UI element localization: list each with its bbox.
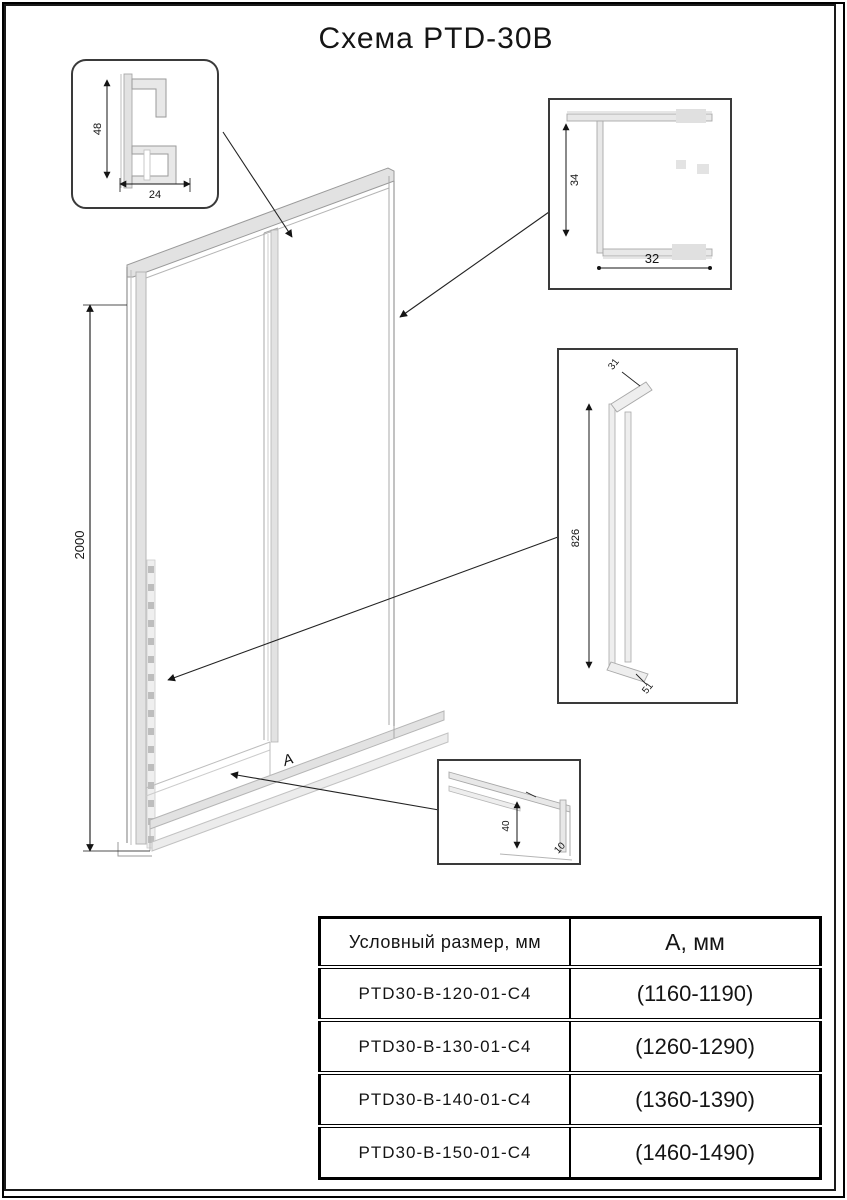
- model-cell: PTD30-B-150-01-C4: [320, 1126, 571, 1179]
- table-row: PTD30-B-150-01-C4 (1460-1490): [320, 1126, 821, 1179]
- table-row: PTD30-B-130-01-C4 (1260-1290): [320, 1020, 821, 1073]
- detail-box-top-profile: 48 24: [72, 60, 218, 208]
- model-cell: PTD30-B-140-01-C4: [320, 1073, 571, 1126]
- detail1-width-label: 24: [149, 189, 161, 201]
- glass-panels-edge: [264, 228, 278, 742]
- wall-profile-left: [127, 267, 155, 848]
- width-dimension-label: A: [280, 750, 296, 770]
- detail-box-handle: 826 31 51: [558, 349, 737, 703]
- size-table-header-row: Условный размер, мм А, мм: [320, 918, 821, 968]
- table-row: PTD30-B-140-01-C4 (1360-1390): [320, 1073, 821, 1126]
- main-door-drawing: 2000 A: [72, 168, 448, 856]
- right-edge-profile: [389, 176, 394, 726]
- model-cell: PTD30-B-130-01-C4: [320, 1020, 571, 1073]
- table-row: PTD30-B-120-01-C4 (1160-1190): [320, 967, 821, 1020]
- detail4-height-label: 40: [501, 820, 512, 832]
- leader-to-handle: [168, 537, 558, 680]
- detail-box-rail-section: 34 32: [549, 99, 731, 289]
- range-cell: (1360-1390): [570, 1073, 821, 1126]
- detail2-height-label: 34: [569, 174, 581, 186]
- col-header-a-mm: А, мм: [570, 918, 821, 968]
- model-cell: PTD30-B-120-01-C4: [320, 967, 571, 1020]
- col-header-nominal-size: Условный размер, мм: [320, 918, 571, 968]
- detail3-length-label: 826: [570, 529, 582, 547]
- size-table: Условный размер, мм А, мм PTD30-B-120-01…: [318, 916, 822, 1180]
- detail-box-bottom-guide: 40 10: [438, 760, 580, 864]
- leader-to-right-profile: [400, 212, 549, 317]
- range-cell: (1260-1290): [570, 1020, 821, 1073]
- range-cell: (1460-1490): [570, 1126, 821, 1179]
- range-cell: (1160-1190): [570, 967, 821, 1020]
- detail1-height-label: 48: [92, 123, 104, 135]
- detail2-width-label: 32: [645, 251, 659, 266]
- height-dimension-label: 2000: [72, 531, 87, 560]
